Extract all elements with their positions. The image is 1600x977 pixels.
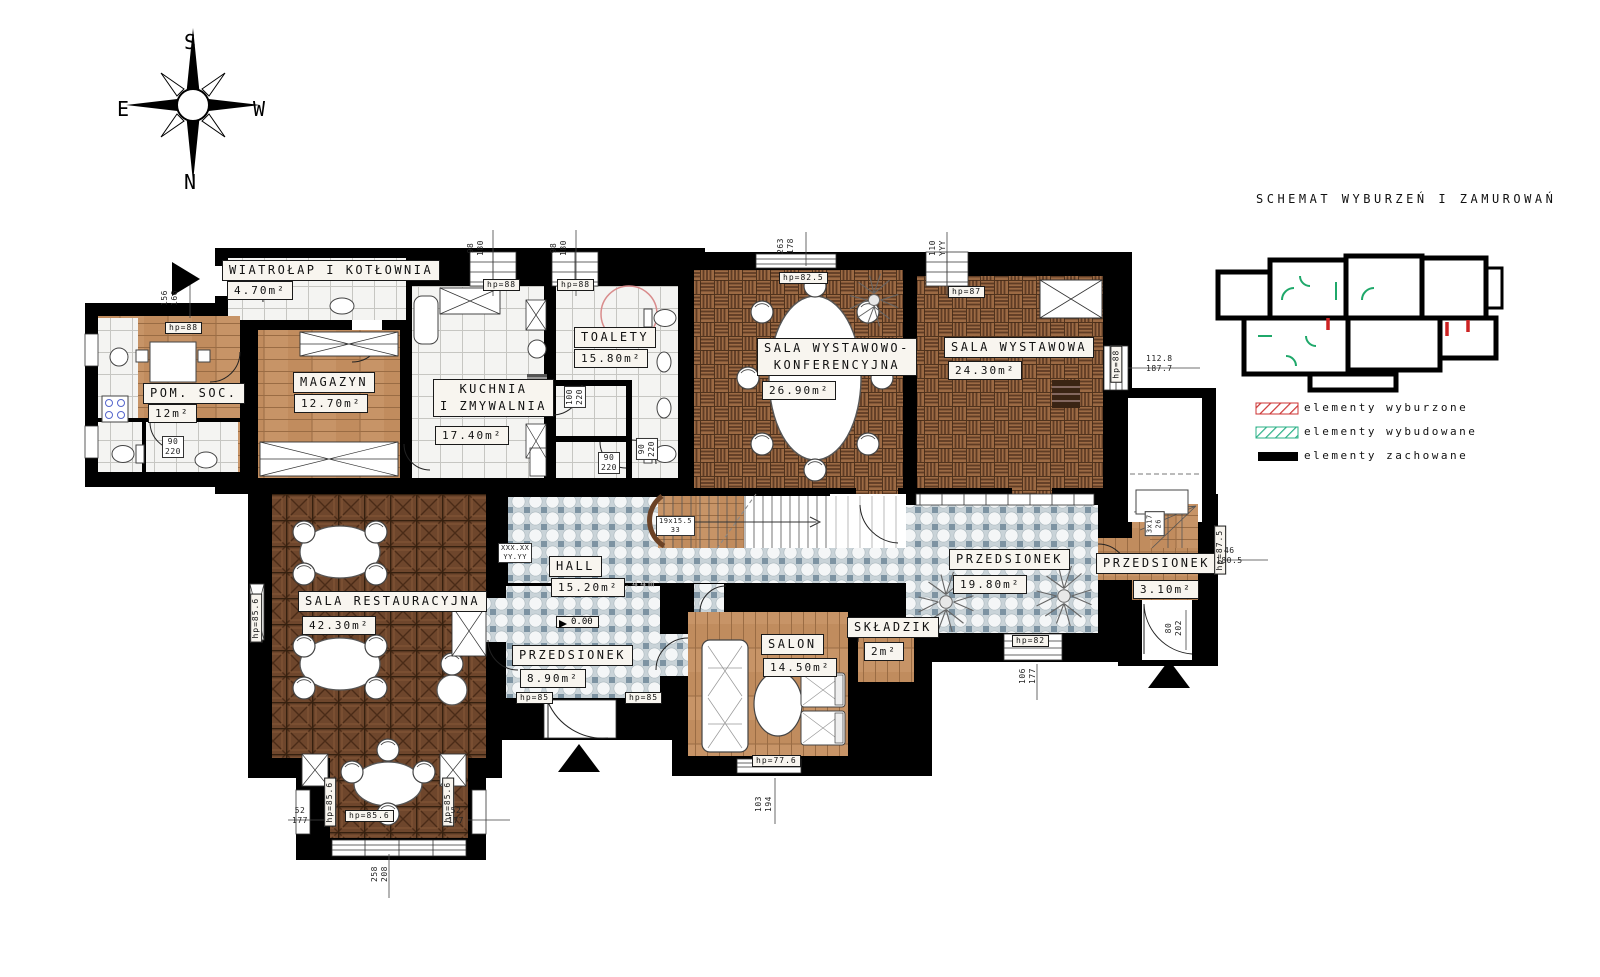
dimension-label: 258 208 bbox=[370, 866, 390, 882]
room-area-wiatrolap: 4.70m² bbox=[227, 281, 293, 300]
inset-built-elements bbox=[1258, 276, 1374, 366]
legend-item-built: elementy wybudowane bbox=[1304, 425, 1477, 438]
dimension-label: 98 180 bbox=[549, 240, 569, 256]
room-label-sala-restauracyjna: SALA RESTAURACYJNA bbox=[298, 591, 487, 612]
room-label-kuchnia: KUCHNIA I ZMYWALNIA bbox=[433, 379, 554, 417]
room-area-sala-wystawowo-konferencyjna: 26.90m² bbox=[762, 381, 836, 400]
dimension-label: 156 166 bbox=[160, 290, 180, 306]
inset-title: SCHEMAT WYBURZEŃ I ZAMUROWAŃ bbox=[1256, 192, 1556, 206]
hp-label: hp=85 bbox=[625, 692, 662, 704]
room-area-toalety: 15.80m² bbox=[574, 349, 648, 368]
legend-item-demolished: elementy wyburzone bbox=[1304, 401, 1468, 414]
dimension-label: 106 177 bbox=[1018, 668, 1038, 684]
hp-label: hp=85.6 bbox=[324, 778, 336, 827]
dimension-label: 98 180 bbox=[466, 240, 486, 256]
legend-swatches bbox=[1256, 403, 1298, 461]
room-label-pomsoc: POM. SOC. bbox=[143, 383, 245, 404]
dimension-label: 263 178 bbox=[776, 238, 796, 254]
dimension-label: 52 177 bbox=[292, 806, 308, 826]
stair-label-back: 3x17 26 bbox=[1145, 511, 1165, 536]
room-area-sala-restauracyjna: 42.30m² bbox=[302, 616, 376, 635]
room-label-sala-wystawowa: SALA WYSTAWOWA bbox=[944, 337, 1094, 358]
room-label-magazyn: MAGAZYN bbox=[293, 372, 375, 393]
hp-label: hp=87 bbox=[948, 286, 985, 298]
room-area-kuchnia: 17.40m² bbox=[435, 426, 509, 445]
hp-label: hp=88 bbox=[483, 279, 520, 291]
dimension-label: 103 194 bbox=[754, 796, 774, 812]
compass-north: N bbox=[184, 170, 196, 194]
legend-swatch-demolished bbox=[1256, 403, 1298, 414]
floor-plan-canvas bbox=[0, 0, 1600, 977]
hp-label: hp=77.6 bbox=[752, 755, 801, 767]
dimension-label: 80 202 bbox=[1164, 620, 1184, 636]
room-label-wiatrolap: WIATROŁAP I KOTŁOWNIA bbox=[222, 260, 440, 281]
dimension-label: 52 177 bbox=[448, 806, 464, 826]
hp-label: hp=85.6 bbox=[250, 594, 262, 643]
room-area-salon: 14.50m² bbox=[763, 658, 837, 677]
hp-label: hp=88 bbox=[1110, 346, 1122, 383]
room-area-przedsionek-1: 8.90m² bbox=[520, 669, 586, 688]
room-label-przedsionek-2: PRZEDSIONEK bbox=[949, 549, 1070, 570]
room-label-skladzik: SKŁADZIK bbox=[847, 617, 939, 638]
inset-plan bbox=[1218, 256, 1502, 390]
room-label-salon: SALON bbox=[761, 634, 824, 655]
room-label-hall: HALL bbox=[549, 556, 602, 577]
room-label-toalety: TOALETY bbox=[574, 327, 656, 348]
room-area-przedsionek-2: 19.80m² bbox=[953, 575, 1027, 594]
room-area-skladzik: 2m² bbox=[864, 642, 904, 661]
dimension-label: 46 180.5 bbox=[1216, 546, 1243, 566]
compass-south: S bbox=[184, 30, 196, 54]
hp-label: hp=88 bbox=[557, 279, 594, 291]
room-area-hall: 15.20m² bbox=[551, 578, 625, 597]
stair-label-main: 19x15.5 33 bbox=[656, 516, 695, 536]
legend-item-kept: elementy zachowane bbox=[1304, 449, 1468, 462]
hp-label: hp=85 bbox=[516, 692, 553, 704]
room-label-przedsionek-3: PRZEDSIONEK bbox=[1096, 553, 1217, 574]
dimension-label: XXX.XX YY.YY bbox=[498, 543, 532, 563]
room-area-przedsionek-3: 3.10m² bbox=[1133, 580, 1199, 599]
floor-plan-page: S N E W SCHEMAT WYBURZEŃ I ZAMUROWAŃ ele… bbox=[0, 0, 1600, 977]
room-label-sala-wystawowo-konferencyjna: SALA WYSTAWOWO- KONFERENCYJNA bbox=[757, 338, 917, 376]
dimension-label: 110 YYY bbox=[928, 240, 948, 256]
compass-east: E bbox=[117, 97, 129, 121]
room-label-przedsionek-1: PRZEDSIONEK bbox=[512, 645, 633, 666]
hp-label: hp=88 bbox=[165, 322, 202, 334]
dimension-label: 100 220 bbox=[564, 386, 586, 408]
compass-west: W bbox=[253, 97, 265, 121]
room-area-pomsoc: 12m² bbox=[148, 404, 197, 423]
dimension-label: 112.8 187.7 bbox=[1146, 354, 1173, 374]
legend-swatch-built bbox=[1256, 427, 1298, 438]
legend-swatch-kept bbox=[1258, 452, 1298, 461]
hp-label: hp=82 bbox=[1012, 635, 1049, 647]
hp-label: hp=85.6 bbox=[345, 810, 394, 822]
dimension-label: 90 220 bbox=[162, 436, 184, 458]
dimension-label: 90 220 bbox=[636, 438, 658, 460]
room-area-magazyn: 12.70m² bbox=[294, 394, 368, 413]
dimension-label: 90 220 bbox=[598, 452, 620, 474]
room-area-sala-wystawowa: 24.30m² bbox=[948, 361, 1022, 380]
hp-label: hp=82.5 bbox=[779, 272, 828, 284]
level-marker-zero: 0.00 bbox=[556, 616, 599, 628]
